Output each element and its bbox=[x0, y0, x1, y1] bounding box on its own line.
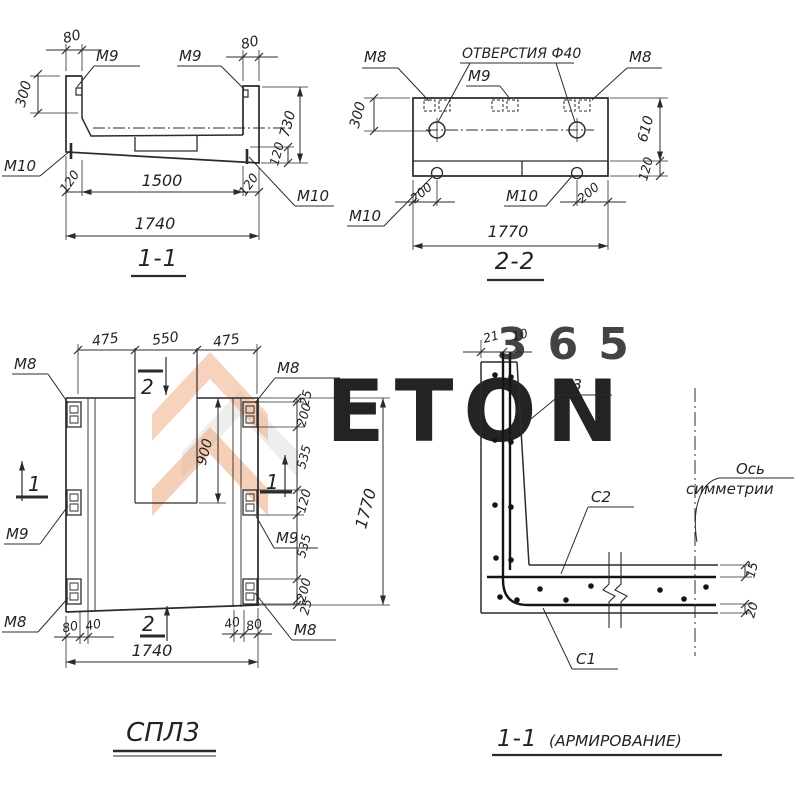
drawing-canvas: ETON 365 80 80 300 730 bbox=[0, 0, 800, 800]
section-1-1-title: 1-1 bbox=[138, 246, 179, 272]
dim-80-right: 80 bbox=[239, 33, 260, 53]
dim-col-25-bottom: 25 bbox=[296, 597, 315, 616]
label-m8-left: М8 bbox=[364, 48, 387, 66]
drawing-sheet: ETON 365 80 80 300 730 bbox=[0, 0, 800, 800]
break-symbol bbox=[603, 552, 627, 628]
section-1-1-dim-lines bbox=[38, 50, 300, 236]
mark-2-top: 2 bbox=[141, 375, 154, 399]
rebar-title-suffix: (АРМИРОВАНИЕ) bbox=[549, 732, 682, 750]
label-m9-left: М9 bbox=[96, 47, 119, 65]
section-1-1-extension-lines bbox=[30, 44, 308, 240]
section-2-2-title: 2-2 bbox=[495, 249, 536, 275]
label-m8-top-right: М8 bbox=[277, 359, 300, 377]
label-c1: С1 bbox=[576, 650, 596, 668]
dim-1770: 1770 bbox=[351, 486, 380, 530]
dim-120-bottom-left: 120 bbox=[56, 167, 82, 195]
label-holes-f40: ОТВЕРСТИЯ Ф40 bbox=[462, 46, 581, 62]
dim-20: 20 bbox=[742, 600, 761, 619]
embed-m9-left-mark bbox=[76, 88, 82, 95]
dim-1740: 1740 bbox=[132, 641, 173, 660]
dim-610: 610 bbox=[635, 114, 657, 144]
dim-1500: 1500 bbox=[142, 171, 183, 190]
label-m10-left: М10 bbox=[349, 207, 381, 225]
label-m9: М9 bbox=[468, 67, 491, 85]
label-m10-left: М10 bbox=[4, 157, 36, 175]
label-m8-bottom-left: М8 bbox=[4, 613, 27, 631]
watermark-letters: ETON bbox=[326, 362, 629, 462]
section-2-2-geometry bbox=[413, 98, 608, 179]
label-m10-mid: М10 bbox=[506, 187, 538, 205]
dim-730: 730 bbox=[277, 109, 299, 139]
dim-40-bottom-right: 40 bbox=[223, 614, 242, 632]
label-axis-line1: Ось bbox=[736, 460, 765, 478]
plan-title: СПЛ3 bbox=[126, 718, 200, 748]
label-c2: С2 bbox=[591, 488, 611, 506]
section-1-1-view: 80 80 300 730 120 120 1500 120 1740 М9 М… bbox=[2, 27, 334, 276]
label-axis-line2: симметрии bbox=[686, 480, 774, 498]
dim-120: 120 bbox=[635, 155, 656, 182]
label-c3: С3 bbox=[562, 376, 582, 394]
label-m9-right: М9 bbox=[276, 529, 299, 547]
label-m8-bottom-right: М8 bbox=[294, 621, 317, 639]
dim-475-left: 475 bbox=[91, 330, 120, 350]
dim-300: 300 bbox=[347, 100, 369, 130]
dim-40-bottom-left: 40 bbox=[84, 616, 103, 634]
dim-475-right: 475 bbox=[212, 331, 241, 351]
label-m9-left: М9 bbox=[6, 525, 29, 543]
dim-300: 300 bbox=[13, 79, 35, 109]
label-m9-right: М9 bbox=[179, 47, 202, 65]
mark-2-bottom: 2 bbox=[142, 612, 155, 636]
rebar-title: 1-1 bbox=[497, 726, 538, 752]
dim-80-bottom-left: 80 bbox=[61, 618, 80, 636]
section-2-2-view: М8 ОТВЕРСТИЯ Ф40 М9 М8 М10 М10 300 610 1… bbox=[347, 46, 668, 280]
dim-550: 550 bbox=[151, 329, 180, 349]
dim-col-535-top: 535 bbox=[293, 443, 314, 470]
dim-col-200-top: 200 bbox=[293, 401, 314, 428]
dim-15: 15 bbox=[742, 560, 761, 579]
dim-1740: 1740 bbox=[135, 214, 176, 233]
mark-1-left: 1 bbox=[28, 472, 41, 496]
label-m10-right: М10 bbox=[297, 187, 329, 205]
section-1-1-geometry bbox=[66, 76, 292, 164]
dim-80-left: 80 bbox=[61, 27, 82, 47]
dim-1770: 1770 bbox=[488, 222, 529, 241]
label-m8-top-left: М8 bbox=[14, 355, 37, 373]
label-m8-right: М8 bbox=[629, 48, 652, 66]
